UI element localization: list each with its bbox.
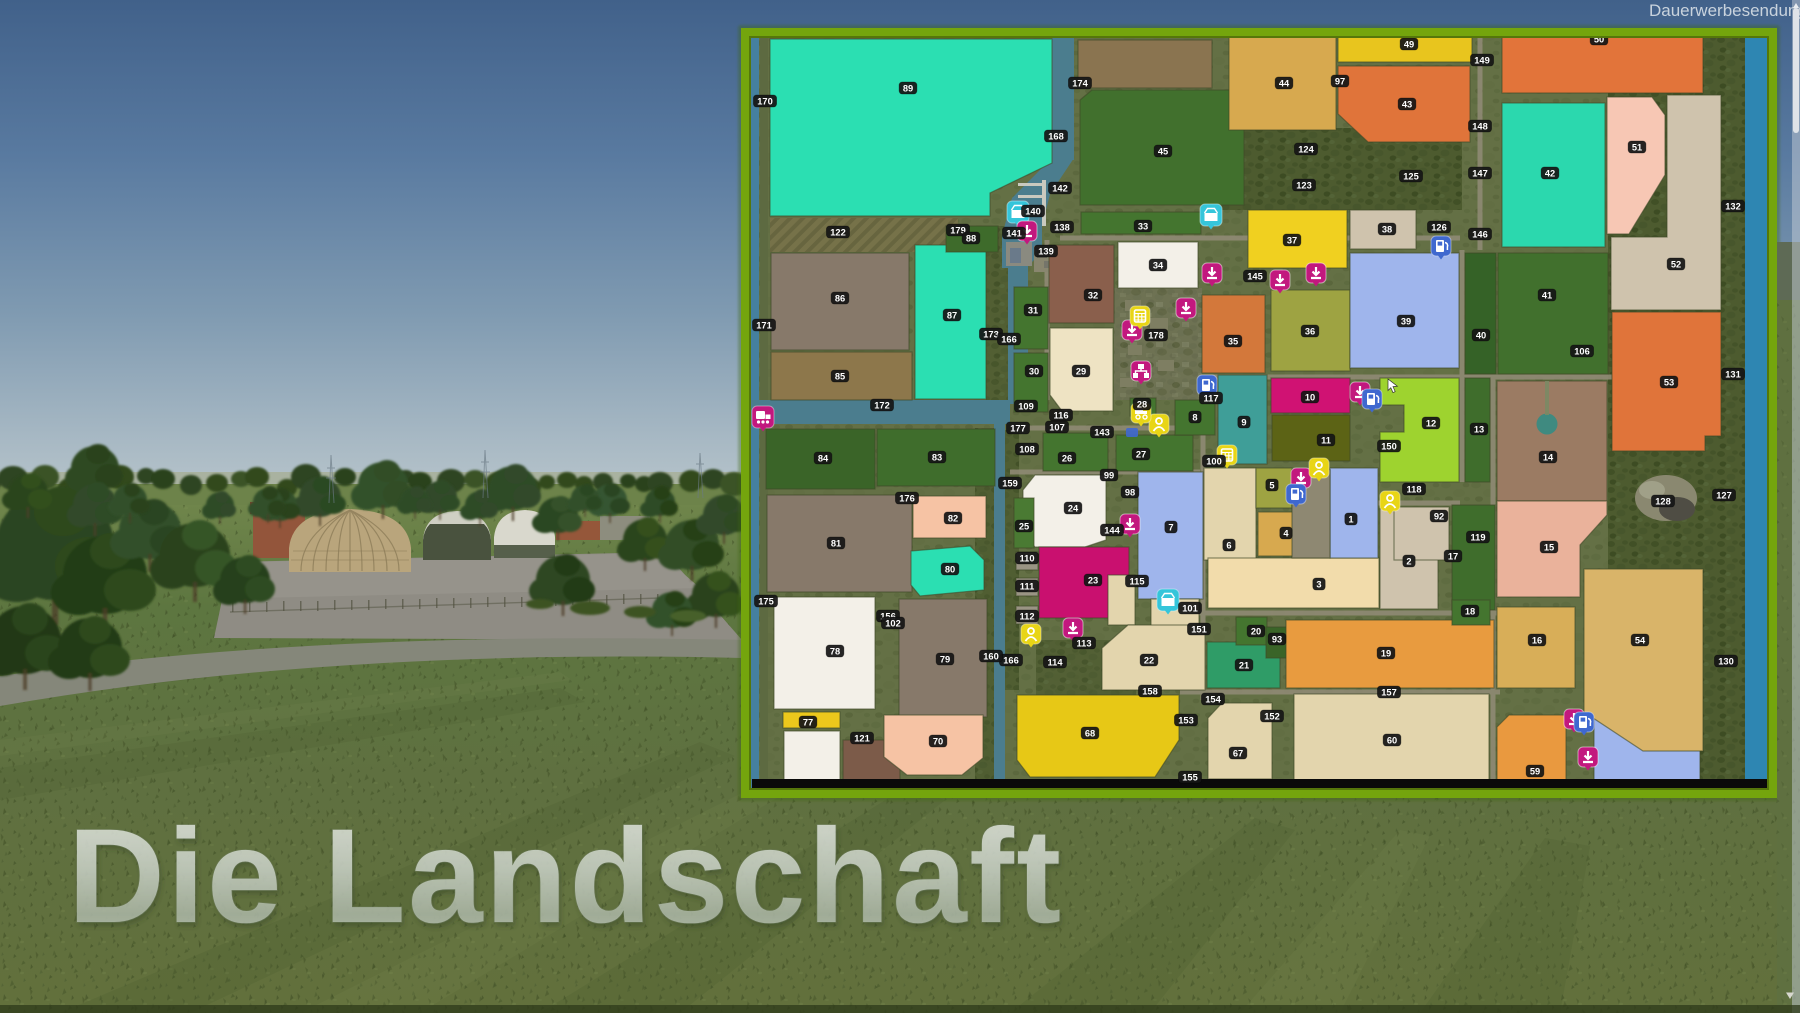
svg-text:171: 171 xyxy=(756,321,772,331)
svg-text:39: 39 xyxy=(1401,317,1411,327)
svg-text:89: 89 xyxy=(903,84,913,94)
svg-text:127: 127 xyxy=(1716,491,1732,501)
svg-text:77: 77 xyxy=(803,718,813,728)
svg-text:118: 118 xyxy=(1407,485,1422,495)
svg-text:115: 115 xyxy=(1130,577,1145,587)
svg-text:25: 25 xyxy=(1019,522,1029,532)
svg-text:82: 82 xyxy=(948,514,958,524)
svg-text:7: 7 xyxy=(1168,523,1173,533)
svg-text:147: 147 xyxy=(1472,169,1488,179)
svg-text:70: 70 xyxy=(933,737,943,747)
svg-text:131: 131 xyxy=(1725,370,1741,380)
svg-text:11: 11 xyxy=(1321,436,1331,446)
svg-text:126: 126 xyxy=(1431,223,1447,233)
svg-text:23: 23 xyxy=(1088,576,1098,586)
svg-text:19: 19 xyxy=(1381,649,1391,659)
svg-text:172: 172 xyxy=(874,401,890,411)
svg-text:81: 81 xyxy=(831,539,841,549)
svg-text:52: 52 xyxy=(1671,260,1681,270)
svg-text:148: 148 xyxy=(1472,122,1488,132)
svg-text:113: 113 xyxy=(1077,639,1092,649)
svg-text:30: 30 xyxy=(1029,367,1039,377)
svg-text:20: 20 xyxy=(1251,627,1261,637)
svg-text:142: 142 xyxy=(1052,184,1068,194)
svg-text:79: 79 xyxy=(940,655,950,665)
svg-text:128: 128 xyxy=(1655,497,1671,507)
svg-text:21: 21 xyxy=(1239,661,1249,671)
svg-text:4: 4 xyxy=(1283,529,1289,539)
svg-text:78: 78 xyxy=(830,647,840,657)
svg-text:68: 68 xyxy=(1085,729,1095,739)
svg-text:151: 151 xyxy=(1191,625,1207,635)
svg-text:92: 92 xyxy=(1434,512,1444,522)
svg-text:85: 85 xyxy=(835,372,845,382)
svg-text:98: 98 xyxy=(1125,488,1135,498)
svg-text:36: 36 xyxy=(1305,327,1315,337)
svg-text:159: 159 xyxy=(1002,479,1018,489)
svg-text:119: 119 xyxy=(1471,533,1486,543)
svg-text:22: 22 xyxy=(1144,656,1154,666)
svg-text:37: 37 xyxy=(1287,236,1297,246)
svg-text:111: 111 xyxy=(1020,582,1035,592)
svg-text:88: 88 xyxy=(966,234,976,244)
svg-text:175: 175 xyxy=(758,597,774,607)
svg-text:177: 177 xyxy=(1010,424,1026,434)
svg-text:140: 140 xyxy=(1025,207,1041,217)
svg-text:116: 116 xyxy=(1054,411,1069,421)
svg-text:138: 138 xyxy=(1054,223,1070,233)
svg-text:9: 9 xyxy=(1241,418,1246,428)
svg-text:123: 123 xyxy=(1296,181,1312,191)
svg-text:87: 87 xyxy=(947,311,957,321)
svg-text:144: 144 xyxy=(1104,526,1120,536)
svg-text:125: 125 xyxy=(1403,172,1419,182)
svg-text:6: 6 xyxy=(1226,541,1231,551)
svg-text:15: 15 xyxy=(1544,543,1554,553)
svg-text:100: 100 xyxy=(1206,457,1222,467)
svg-text:51: 51 xyxy=(1632,143,1642,153)
svg-text:176: 176 xyxy=(899,494,915,504)
svg-text:155: 155 xyxy=(1182,773,1198,783)
svg-text:145: 145 xyxy=(1247,272,1263,282)
svg-text:112: 112 xyxy=(1020,612,1035,622)
svg-text:1: 1 xyxy=(1348,515,1353,525)
svg-text:86: 86 xyxy=(835,294,845,304)
svg-text:109: 109 xyxy=(1018,402,1034,412)
svg-text:152: 152 xyxy=(1264,712,1280,722)
svg-text:17: 17 xyxy=(1448,552,1458,562)
svg-text:80: 80 xyxy=(945,565,955,575)
svg-text:35: 35 xyxy=(1228,337,1238,347)
svg-text:130: 130 xyxy=(1718,657,1734,667)
svg-text:13: 13 xyxy=(1474,425,1484,435)
svg-text:84: 84 xyxy=(818,454,829,464)
svg-text:110: 110 xyxy=(1020,554,1035,564)
svg-text:102: 102 xyxy=(885,619,901,629)
svg-text:10: 10 xyxy=(1305,393,1315,403)
svg-text:Dauerwerbesendung: Dauerwerbesendung xyxy=(1649,1,1800,20)
svg-text:3: 3 xyxy=(1316,580,1321,590)
svg-text:143: 143 xyxy=(1094,428,1110,438)
svg-text:101: 101 xyxy=(1182,604,1198,614)
svg-text:31: 31 xyxy=(1028,306,1038,316)
svg-text:93: 93 xyxy=(1272,635,1282,645)
svg-text:97: 97 xyxy=(1335,77,1345,87)
svg-text:160: 160 xyxy=(983,652,999,662)
svg-text:106: 106 xyxy=(1574,347,1590,357)
svg-text:53: 53 xyxy=(1664,378,1674,388)
svg-text:174: 174 xyxy=(1072,79,1088,89)
svg-text:60: 60 xyxy=(1387,736,1397,746)
svg-text:99: 99 xyxy=(1104,471,1114,481)
svg-text:29: 29 xyxy=(1076,367,1086,377)
svg-text:117: 117 xyxy=(1204,394,1219,404)
svg-text:83: 83 xyxy=(932,453,942,463)
svg-text:158: 158 xyxy=(1142,687,1158,697)
svg-text:168: 168 xyxy=(1048,132,1064,142)
svg-text:107: 107 xyxy=(1049,423,1065,433)
svg-text:67: 67 xyxy=(1233,749,1243,759)
svg-text:45: 45 xyxy=(1158,147,1168,157)
svg-text:132: 132 xyxy=(1725,202,1741,212)
svg-text:43: 43 xyxy=(1402,100,1412,110)
svg-text:178: 178 xyxy=(1148,331,1164,341)
svg-text:42: 42 xyxy=(1545,169,1555,179)
svg-text:150: 150 xyxy=(1381,442,1397,452)
svg-text:170: 170 xyxy=(757,97,773,107)
svg-text:139: 139 xyxy=(1038,247,1054,257)
svg-text:2: 2 xyxy=(1406,557,1411,567)
svg-text:59: 59 xyxy=(1530,767,1540,777)
svg-text:14: 14 xyxy=(1543,453,1554,463)
svg-text:122: 122 xyxy=(830,228,846,238)
svg-text:41: 41 xyxy=(1542,291,1552,301)
svg-text:16: 16 xyxy=(1532,636,1542,646)
svg-text:12: 12 xyxy=(1426,419,1436,429)
svg-text:5: 5 xyxy=(1269,481,1274,491)
svg-text:26: 26 xyxy=(1062,454,1072,464)
svg-text:146: 146 xyxy=(1472,230,1488,240)
svg-text:44: 44 xyxy=(1279,79,1290,89)
svg-text:141: 141 xyxy=(1006,229,1022,239)
svg-text:124: 124 xyxy=(1298,145,1314,155)
svg-text:32: 32 xyxy=(1088,291,1098,301)
svg-text:157: 157 xyxy=(1381,688,1397,698)
svg-text:154: 154 xyxy=(1205,695,1221,705)
svg-text:28: 28 xyxy=(1137,400,1147,410)
svg-text:24: 24 xyxy=(1068,504,1079,514)
svg-text:166: 166 xyxy=(1003,656,1019,666)
svg-text:173: 173 xyxy=(983,330,999,340)
svg-text:34: 34 xyxy=(1153,261,1164,271)
svg-text:18: 18 xyxy=(1465,607,1475,617)
svg-text:27: 27 xyxy=(1136,450,1146,460)
svg-text:153: 153 xyxy=(1178,716,1194,726)
svg-text:108: 108 xyxy=(1019,445,1035,455)
svg-text:38: 38 xyxy=(1382,225,1392,235)
svg-text:40: 40 xyxy=(1476,331,1486,341)
svg-text:121: 121 xyxy=(854,734,870,744)
svg-text:8: 8 xyxy=(1192,413,1197,423)
svg-text:166: 166 xyxy=(1001,335,1017,345)
svg-text:49: 49 xyxy=(1404,40,1414,50)
svg-text:Die Landschaft: Die Landschaft xyxy=(68,802,1064,951)
svg-text:114: 114 xyxy=(1048,658,1064,668)
svg-text:33: 33 xyxy=(1138,222,1148,232)
svg-text:149: 149 xyxy=(1474,56,1490,66)
svg-text:54: 54 xyxy=(1635,636,1646,646)
